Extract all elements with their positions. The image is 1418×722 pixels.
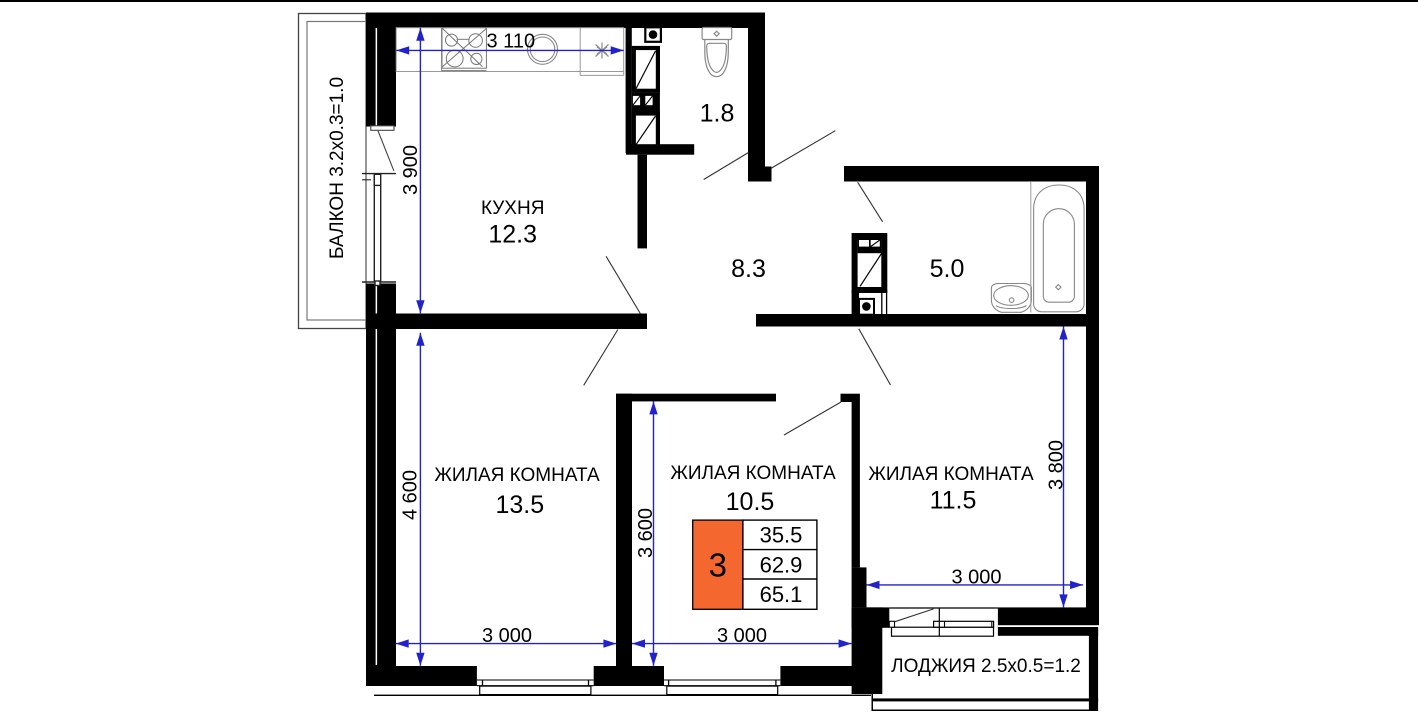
svg-text:3 600: 3 600 [635,508,657,558]
svg-text:3: 3 [709,547,727,584]
svg-text:БАЛКОН 3.2х0.3=1.0: БАЛКОН 3.2х0.3=1.0 [327,77,348,259]
svg-text:3 110: 3 110 [487,31,536,53]
svg-text:ЛОДЖИЯ 2.5х0.5=1.2: ЛОДЖИЯ 2.5х0.5=1.2 [891,656,1081,677]
svg-text:КУХНЯ: КУХНЯ [481,198,544,219]
svg-text:35.5: 35.5 [760,523,803,548]
svg-text:62.9: 62.9 [760,553,803,578]
svg-text:3 800: 3 800 [1046,440,1068,490]
svg-text:3 000: 3 000 [482,625,532,647]
svg-text:3 900: 3 900 [400,145,422,195]
svg-text:ЖИЛАЯ КОМНАТА: ЖИЛАЯ КОМНАТА [670,463,836,484]
svg-text:13.5: 13.5 [495,491,544,519]
svg-text:ЖИЛАЯ КОМНАТА: ЖИЛАЯ КОМНАТА [868,464,1034,485]
svg-text:1.8: 1.8 [700,100,735,128]
svg-text:10.5: 10.5 [726,488,775,516]
svg-text:ЖИЛАЯ КОМНАТА: ЖИЛАЯ КОМНАТА [434,465,600,486]
svg-text:3 000: 3 000 [717,625,767,647]
svg-text:65.1: 65.1 [760,582,803,607]
svg-text:5.0: 5.0 [930,255,965,283]
svg-text:11.5: 11.5 [930,487,977,515]
svg-text:4 600: 4 600 [400,470,422,520]
svg-text:12.3: 12.3 [488,221,537,249]
svg-text:3 000: 3 000 [951,567,1001,589]
svg-text:8.3: 8.3 [731,255,766,283]
